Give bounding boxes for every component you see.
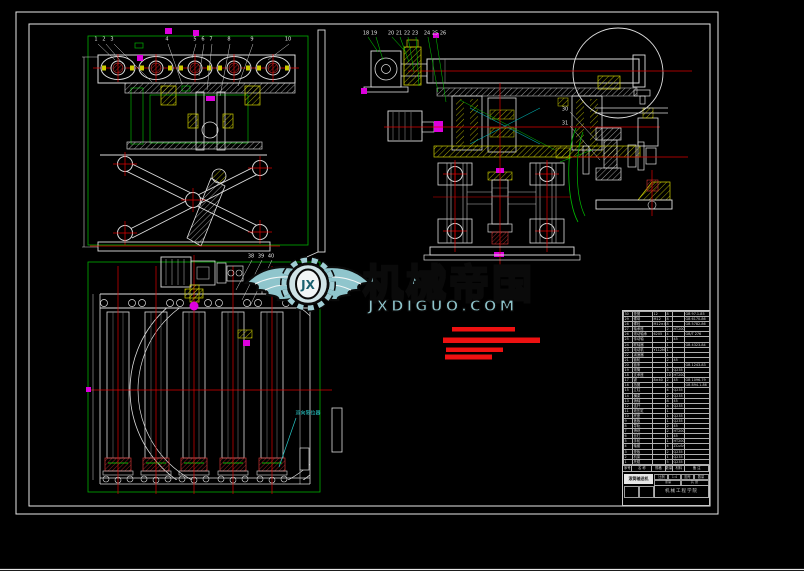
bom-cell: HT200 xyxy=(673,439,685,444)
balloon-number: 21 xyxy=(396,32,402,37)
bom-row: 30垫圈128GB 97.1-85 xyxy=(624,312,710,317)
balloon-number: 39 xyxy=(258,255,264,260)
watermark-monogram: JX xyxy=(301,279,315,291)
bom-row: 26滚动轴承62054GB/T 276 xyxy=(624,332,710,337)
balloon-number: 20 xyxy=(388,32,394,37)
limit-device-callout: 双向限位器 xyxy=(295,410,320,417)
balloon-number: 23 xyxy=(412,32,418,37)
balloon-number: 19 xyxy=(371,32,377,37)
bom-cell xyxy=(653,459,666,464)
bom-cell: GB 894.1-86 xyxy=(685,383,710,388)
bom-cell: 1 xyxy=(624,459,633,464)
balloon-number: 1 xyxy=(94,38,97,43)
balloon-number: 10 xyxy=(285,38,291,43)
balloon-number: 4 xyxy=(165,38,168,43)
balloon-number: 22 xyxy=(404,32,410,37)
product-name-cell: 滚筒输送机 xyxy=(624,474,653,484)
balloon-number: 5 xyxy=(193,38,196,43)
bom-cell: HT200 xyxy=(673,327,685,332)
bom-row: 1托辊5Q235 xyxy=(624,459,710,464)
balloon-number: 31 xyxy=(562,122,568,127)
callout-leader xyxy=(279,418,296,467)
balloon-number: 24 xyxy=(424,32,430,37)
bom-cell: HT200 xyxy=(673,429,685,434)
bom-cell: 托辊 xyxy=(633,459,653,464)
bom-row: 28螺栓M12×408GB 5782-86 xyxy=(624,322,710,327)
balloon-number: 26 xyxy=(440,32,446,37)
redacted-text-lines xyxy=(443,327,540,360)
title-block: 滚筒输送机 比例 1:4 图号 数量 重量 共 张 机械工程学院 xyxy=(623,471,709,498)
organization-cell: 机械工程学院 xyxy=(654,485,709,498)
bom-cell: M12×40 xyxy=(653,322,666,327)
bom-cell: HT200 xyxy=(673,373,685,378)
balloon-number: 38 xyxy=(248,255,254,260)
balloon-number: 2 xyxy=(102,38,105,43)
balloon-number: 7 xyxy=(209,38,212,43)
watermark-site-text: JXDIGUO.COM xyxy=(368,297,517,315)
balloon-number: 9 xyxy=(250,38,253,43)
bom-row: 24联轴器1GB 4323-84 xyxy=(624,342,710,347)
front-view xyxy=(82,28,325,260)
side-view xyxy=(361,28,692,160)
bom-rows: 30垫圈128GB 97.1-8529螺母M128GB 6170-8628螺栓M… xyxy=(623,311,710,465)
balloon-number: 18 xyxy=(363,32,369,37)
balloon-number: 6 xyxy=(201,38,204,43)
cad-application-canvas: 机械帝国 JXDIGUO.COM JX 双向限位器 12345678910181… xyxy=(0,0,804,571)
bom-row: 16挡圈4GB 894.1-86 xyxy=(624,383,710,388)
bom-cell: Y112M-4 xyxy=(653,347,666,352)
bom-cell: Q235 xyxy=(673,459,685,464)
bom-row: 17键8×40245GB 1096-79 xyxy=(624,378,710,383)
bom-row: 20链条1GB 1243-83 xyxy=(624,362,710,367)
balloon-number: 40 xyxy=(268,255,274,260)
balloon-number: 3 xyxy=(110,38,113,43)
balloon-number: 8 xyxy=(227,38,230,43)
signature-box xyxy=(638,486,654,498)
balloon-number: 25 xyxy=(432,32,438,37)
bom-cell: 5 xyxy=(666,459,673,464)
bom-table: 30垫圈128GB 97.1-8529螺母M128GB 6170-8628螺栓M… xyxy=(622,310,710,506)
balloon-number: 30 xyxy=(562,108,568,113)
bom-cell xyxy=(685,459,710,464)
bom-cell: ZCuSn10 xyxy=(673,444,685,449)
bom-row: 29螺母M128GB 6170-86 xyxy=(624,317,710,322)
